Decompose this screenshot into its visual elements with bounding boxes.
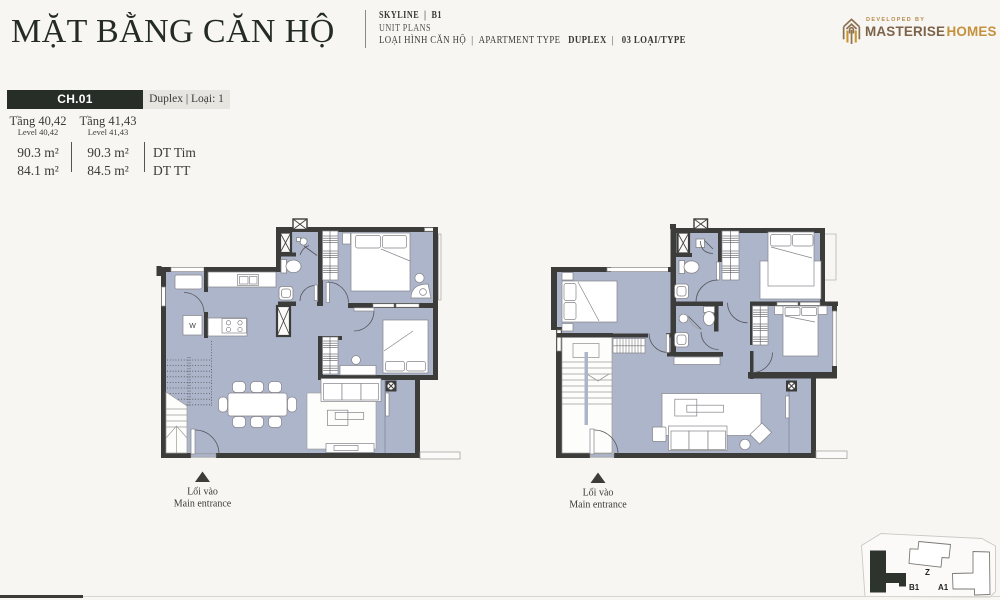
svg-text:A1: A1 [938,583,949,592]
svg-text:Lối vào: Lối vào [187,487,218,498]
svg-text:W: W [189,323,196,330]
svg-text:Lối vào: Lối vào [583,488,614,499]
svg-text:Main entrance: Main entrance [569,500,627,511]
svg-text:Z: Z [925,568,930,577]
svg-text:Main entrance: Main entrance [174,499,232,510]
svg-text:B1: B1 [909,583,920,592]
